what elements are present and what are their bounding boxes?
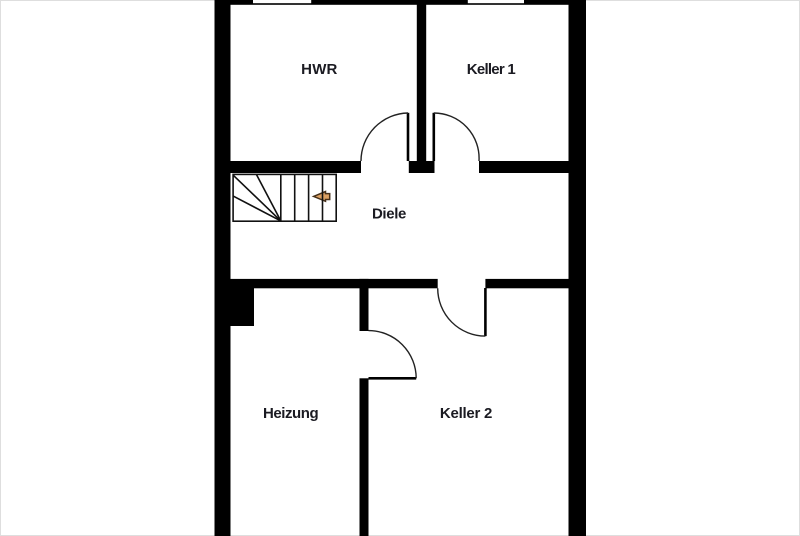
svg-text:Keller 2: Keller 2 [440, 405, 492, 422]
svg-text:HWR: HWR [301, 61, 337, 78]
svg-text:Keller 1: Keller 1 [467, 61, 516, 78]
svg-text:Heizung: Heizung [263, 405, 318, 422]
svg-text:Diele: Diele [372, 205, 406, 222]
